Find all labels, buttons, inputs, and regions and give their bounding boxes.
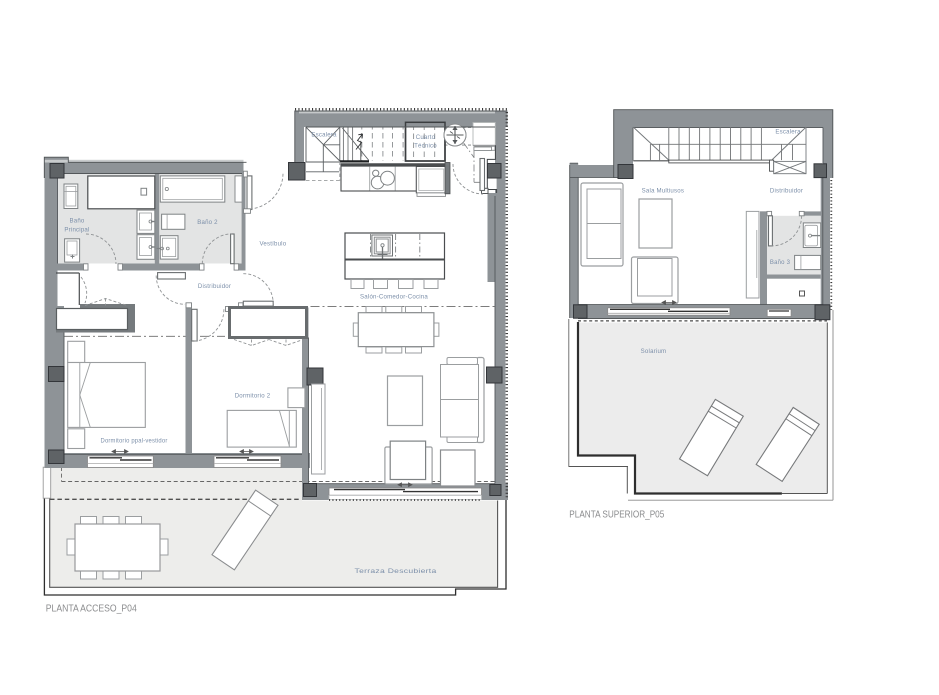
svg-text:Terraza Descubierta: Terraza Descubierta — [355, 568, 437, 575]
svg-text:Principal: Principal — [64, 227, 89, 234]
svg-text:Distribuidor: Distribuidor — [770, 188, 803, 195]
svg-text:Cuarto: Cuarto — [416, 134, 436, 141]
svg-text:Vestíbulo: Vestíbulo — [259, 241, 286, 248]
svg-text:Baño: Baño — [69, 218, 84, 225]
svg-text:Dormitorio 2: Dormitorio 2 — [235, 393, 271, 400]
svg-text:Baño 2: Baño 2 — [197, 219, 218, 226]
svg-text:Sala Multiusos: Sala Multiusos — [642, 188, 684, 195]
svg-text:Dormitorio ppal-vestidor: Dormitorio ppal-vestidor — [101, 438, 168, 445]
svg-text:Distribuidor: Distribuidor — [198, 283, 231, 290]
svg-text:Baño 3: Baño 3 — [770, 260, 791, 266]
svg-text:Técnico: Técnico — [414, 143, 437, 150]
svg-text:Salón-Comedor-Cocina: Salón-Comedor-Cocina — [360, 294, 428, 301]
svg-text:PLANTA ACCESO_P04: PLANTA ACCESO_P04 — [46, 604, 137, 615]
svg-text:Escalera: Escalera — [311, 132, 337, 139]
svg-text:Escalera: Escalera — [775, 129, 801, 136]
svg-text:PLANTA SUPERIOR_P05: PLANTA SUPERIOR_P05 — [569, 510, 664, 521]
svg-text:Solarium: Solarium — [641, 348, 667, 355]
